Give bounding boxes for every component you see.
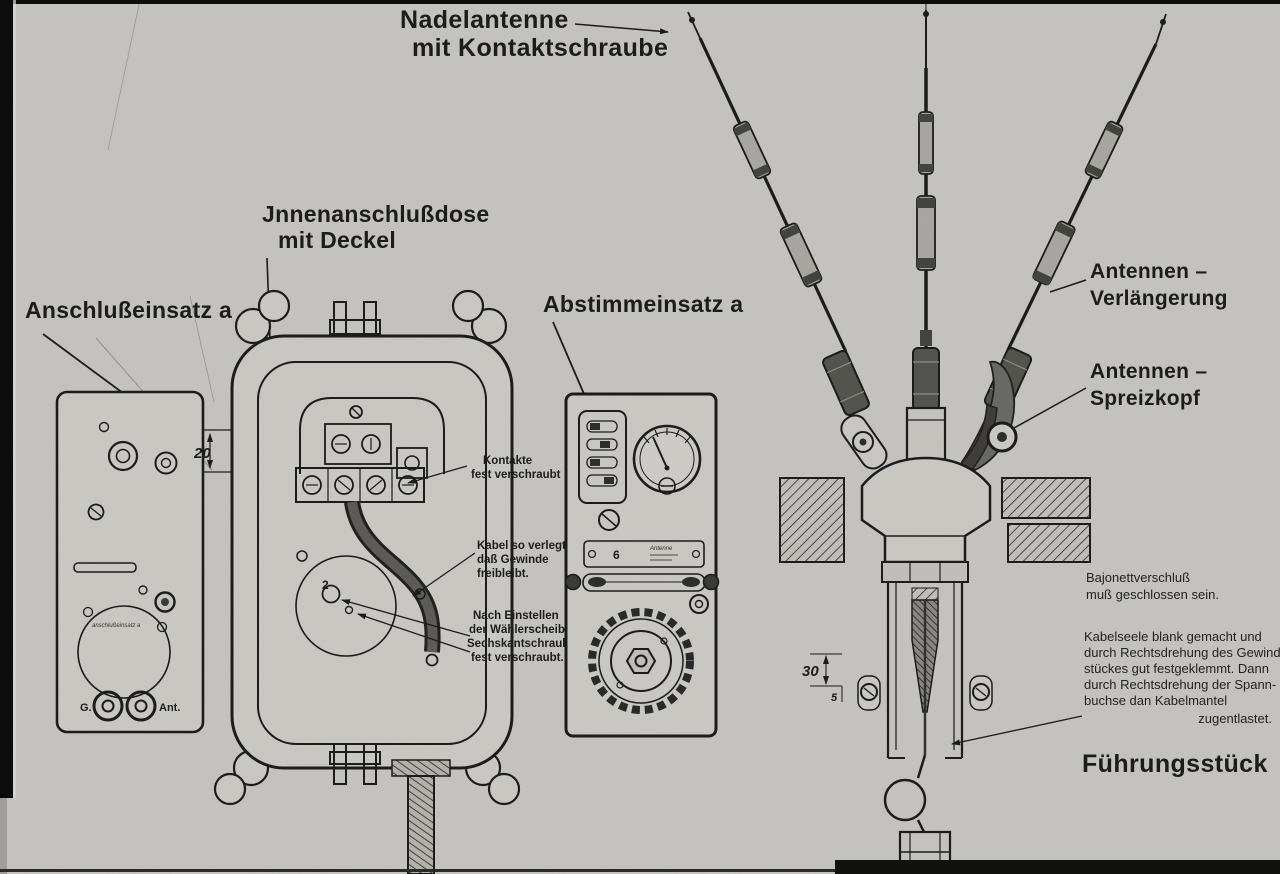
diagram-canvas: anschlußeinsatz a G. Ant. Anschlußeinsat… xyxy=(0,0,1280,874)
scanned-technical-diagram: anschlußeinsatz a G. Ant. Anschlußeinsat… xyxy=(0,0,1280,874)
film-grain-overlay xyxy=(0,0,1280,874)
